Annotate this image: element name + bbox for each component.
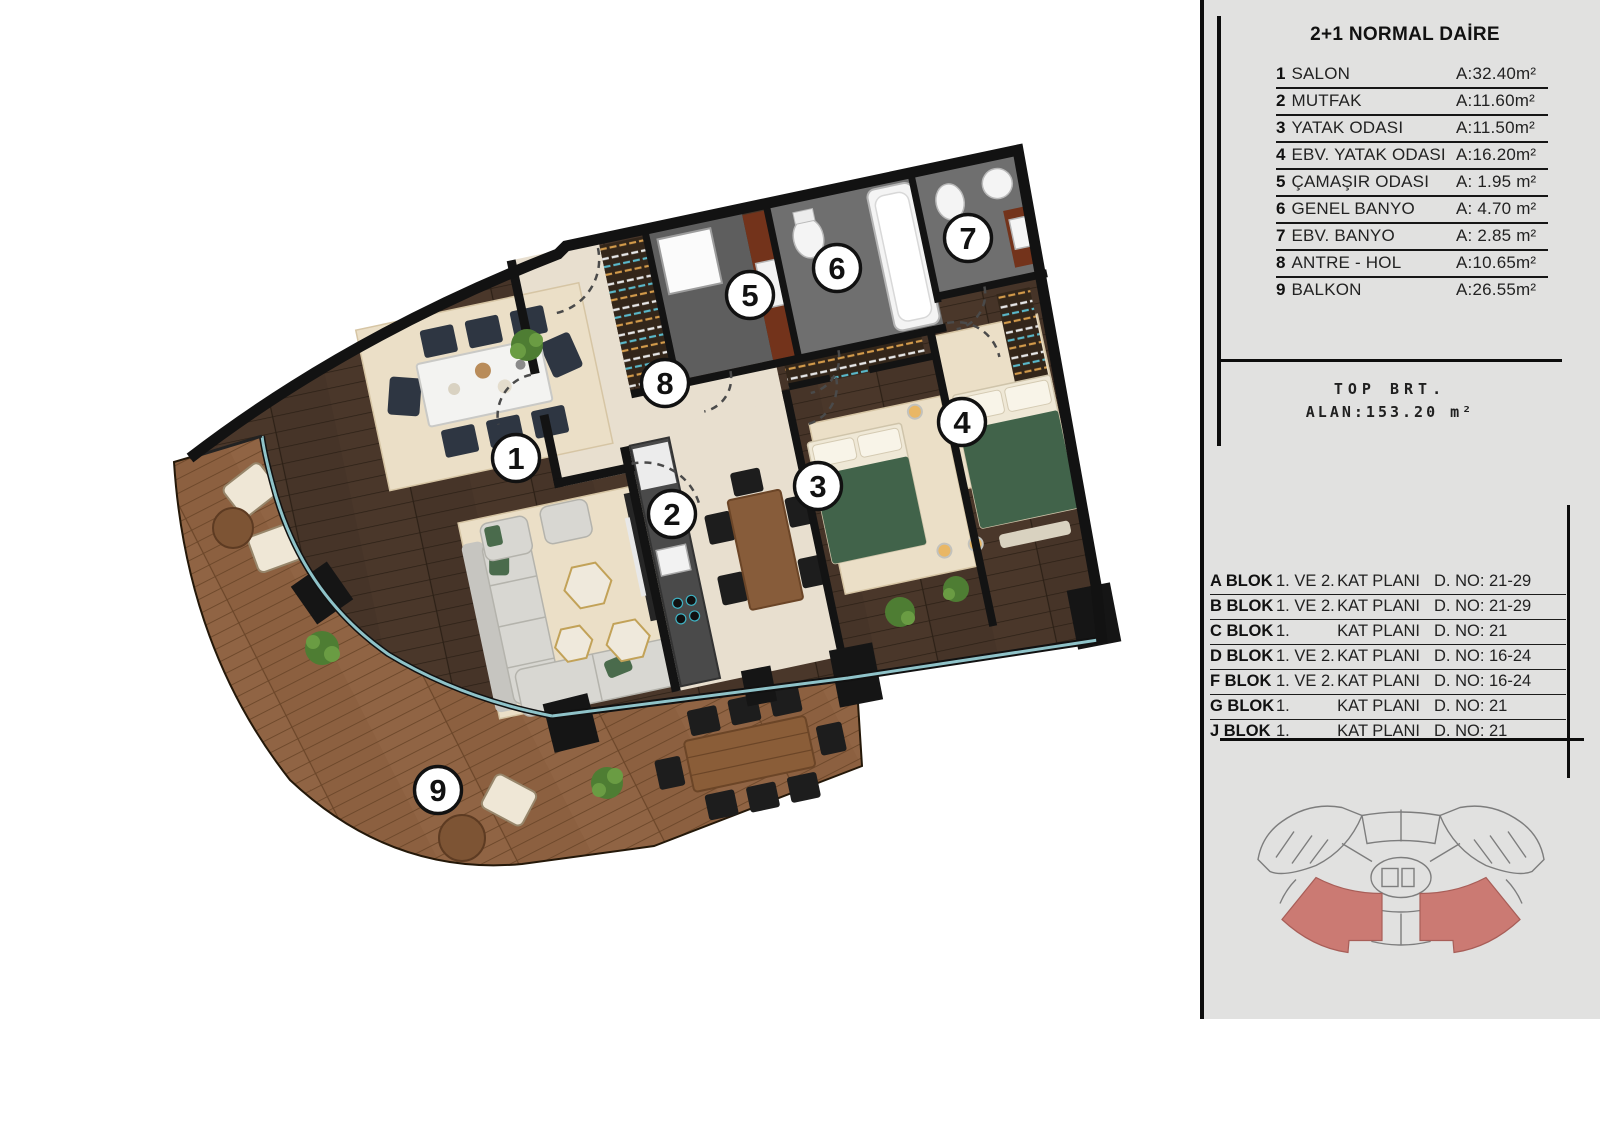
block-row: F BLOK1. VE 2.KAT PLANID. NO: 16-24 <box>1210 670 1566 695</box>
room-badge-6: 6 <box>814 245 861 292</box>
svg-text:5: 5 <box>741 278 758 313</box>
svg-text:7: 7 <box>959 221 976 256</box>
room-row: 7EBV. BANYOA: 2.85 m² <box>1276 224 1548 251</box>
block-list-bottom-rule <box>1220 738 1584 741</box>
block-list: A BLOK1. VE 2.KAT PLANID. NO: 21-29 B BL… <box>1210 570 1566 744</box>
room-list: 1SALONA:32.40m² 2MUTFAKA:11.60m² 3YATAK … <box>1276 62 1548 303</box>
washer <box>657 228 721 294</box>
block-list-right-rule <box>1567 505 1570 778</box>
room-row: 9BALKONA:26.55m² <box>1276 278 1548 303</box>
block-row: A BLOK1. VE 2.KAT PLANID. NO: 21-29 <box>1210 570 1566 595</box>
room-badge-5: 5 <box>727 272 774 319</box>
kitchen-sink <box>656 544 691 576</box>
block-row: B BLOK1. VE 2.KAT PLANID. NO: 21-29 <box>1210 595 1566 620</box>
legend-vertical-rule <box>1217 16 1221 446</box>
block-row: G BLOK1.KAT PLANID. NO: 21 <box>1210 695 1566 720</box>
deck-round-table <box>213 508 253 548</box>
room-row: 8ANTRE - HOLA:10.65m² <box>1276 251 1548 278</box>
total-area-block: TOP BRT. ALAN:153.20 m² <box>1255 380 1525 421</box>
room-row: 1SALONA:32.40m² <box>1276 62 1548 89</box>
room-badge-1: 1 <box>493 435 540 482</box>
page: 1 2 3 4 5 6 7 8 9 2+1 NORMAL DAİRE 1SALO… <box>0 0 1600 1131</box>
total-area-value: ALAN:153.20 m² <box>1255 403 1525 421</box>
room-badge-2: 2 <box>649 491 696 538</box>
room-badge-4: 4 <box>939 399 986 446</box>
key-plan <box>1236 790 1566 1008</box>
floor-plan-area: 1 2 3 4 5 6 7 8 9 <box>0 0 1200 1131</box>
room-badge-8: 8 <box>642 360 689 407</box>
panel-left-border <box>1200 0 1204 1019</box>
room-badge-7: 7 <box>945 215 992 262</box>
svg-text:9: 9 <box>429 773 446 808</box>
room-badge-3: 3 <box>795 463 842 510</box>
block-row: D BLOK1. VE 2.KAT PLANID. NO: 16-24 <box>1210 645 1566 670</box>
room-row: 4EBV. YATAK ODASIA:16.20m² <box>1276 143 1548 170</box>
room-row: 2MUTFAKA:11.60m² <box>1276 89 1548 116</box>
legend-panel: 2+1 NORMAL DAİRE 1SALONA:32.40m² 2MUTFAK… <box>1200 0 1600 1019</box>
svg-text:3: 3 <box>809 469 826 504</box>
block-row: C BLOK1.KAT PLANID. NO: 21 <box>1210 620 1566 645</box>
total-divider <box>1218 359 1562 362</box>
svg-text:6: 6 <box>828 251 845 286</box>
room-row: 5ÇAMAŞIR ODASIA: 1.95 m² <box>1276 170 1548 197</box>
room-row: 3YATAK ODASIA:11.50m² <box>1276 116 1548 143</box>
total-area-label: TOP BRT. <box>1255 380 1525 398</box>
deck-round-table-2 <box>439 815 485 861</box>
room-row: 6GENEL BANYOA: 4.70 m² <box>1276 197 1548 224</box>
svg-text:4: 4 <box>953 405 971 440</box>
svg-text:8: 8 <box>656 366 673 401</box>
floor-plan: 1 2 3 4 5 6 7 8 9 <box>0 0 1200 1131</box>
svg-text:2: 2 <box>663 497 680 532</box>
room-badge-9: 9 <box>415 767 462 814</box>
apartment-type-title: 2+1 NORMAL DAİRE <box>1260 24 1550 46</box>
svg-text:1: 1 <box>507 441 524 476</box>
